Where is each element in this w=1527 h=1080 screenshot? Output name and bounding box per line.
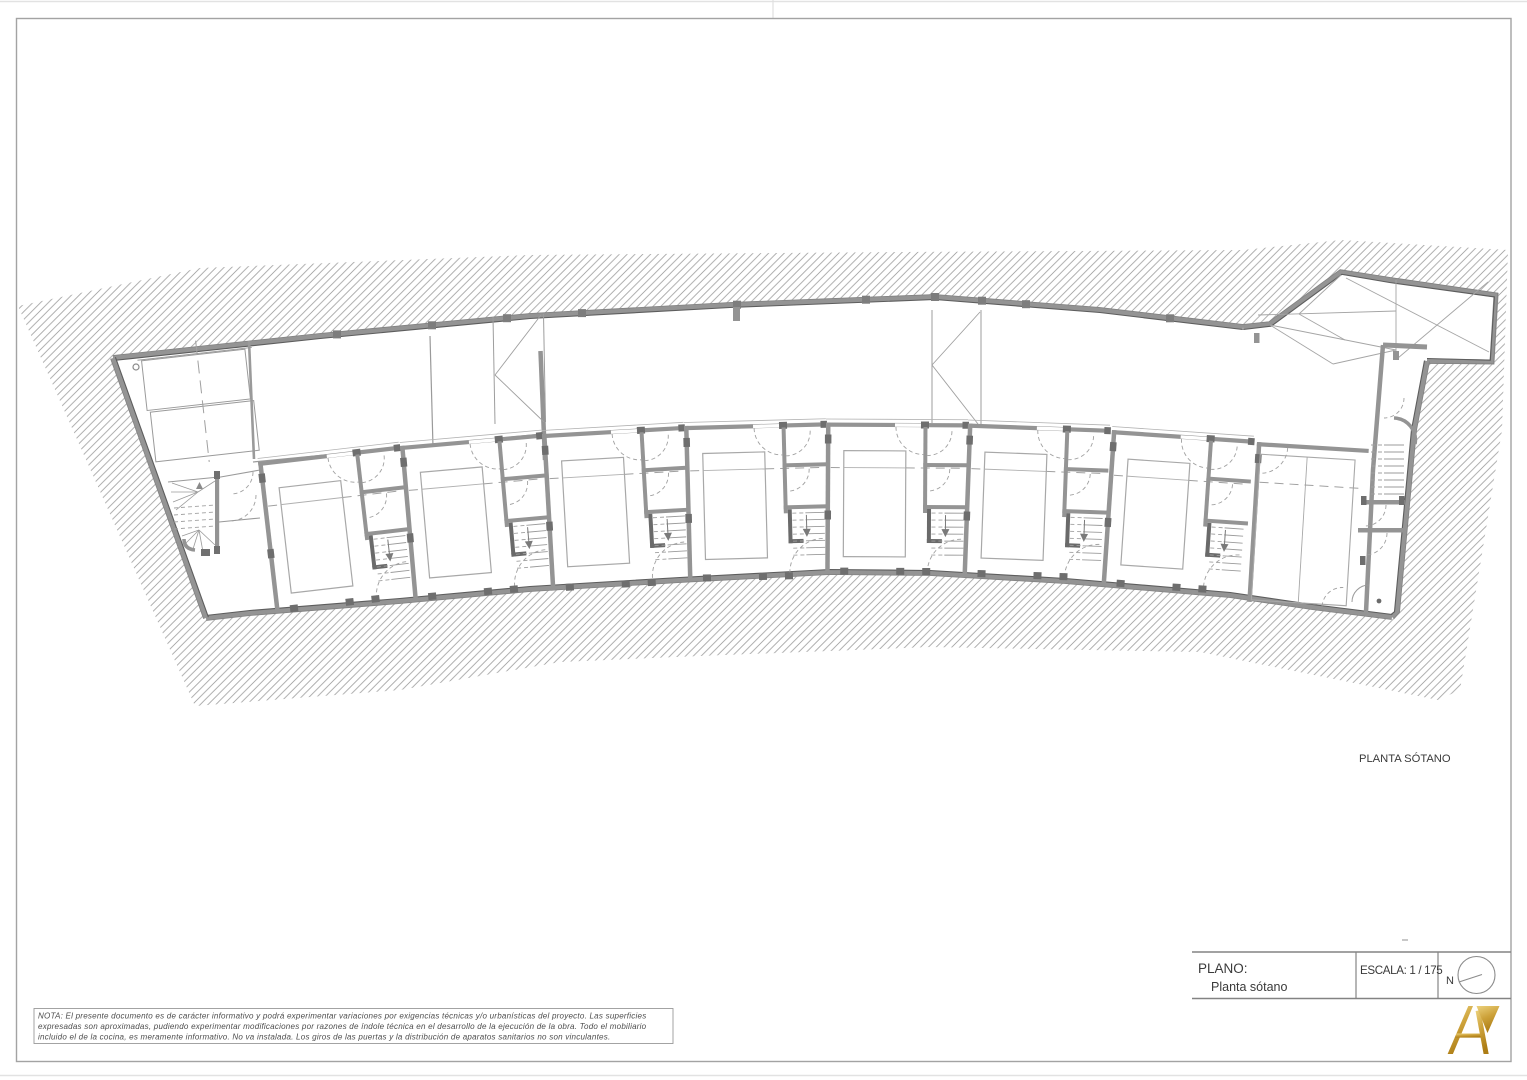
svg-text:expresadas son aproximadas, pu: expresadas son aproximadas, pudiendo exp… (38, 1022, 647, 1031)
svg-text:PLANO:: PLANO: (1198, 961, 1248, 976)
svg-text:ESCALA: 1 / 175: ESCALA: 1 / 175 (1360, 964, 1442, 977)
svg-text:NOTA: El presente documento es: NOTA: El presente documento es de caráct… (38, 1012, 646, 1021)
svg-text:Planta sótano: Planta sótano (1211, 980, 1287, 994)
svg-text:N: N (1446, 975, 1454, 987)
svg-text:incluido el de la cocina, es m: incluido el de la cocina, es meramente i… (38, 1033, 610, 1042)
svg-text:PLANTA SÓTANO: PLANTA SÓTANO (1359, 752, 1451, 765)
